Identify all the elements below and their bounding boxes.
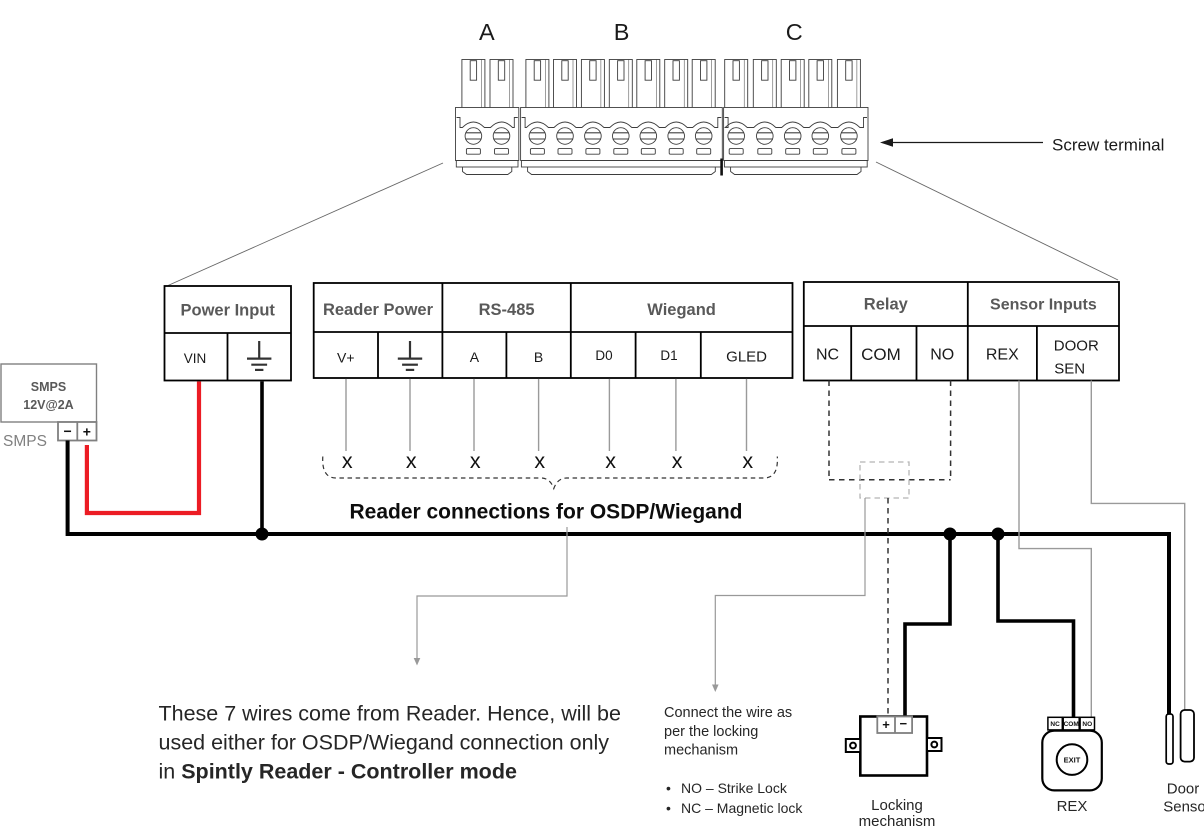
svg-text:NO – Strike Lock: NO – Strike Lock [681,780,788,796]
svg-text:•: • [666,800,671,816]
svg-text:x: x [342,449,353,473]
svg-text:Sensor Inputs: Sensor Inputs [990,297,1097,314]
svg-text:VIN: VIN [184,351,207,366]
svg-text:REX: REX [986,347,1019,364]
svg-text:NC: NC [816,347,839,364]
svg-text:Wiegand: Wiegand [647,301,716,319]
svg-text:mechanism: mechanism [664,743,738,759]
svg-text:Sensor: Sensor [1163,799,1204,816]
svg-text:REX: REX [1057,798,1088,815]
svg-text:SMPS: SMPS [31,380,66,394]
svg-text:Door: Door [1167,781,1200,798]
svg-text:in Spintly Reader - Controller: in Spintly Reader - Controller mode [159,760,517,784]
svg-text:mechanism: mechanism [859,813,936,827]
svg-text:−: − [900,716,908,731]
svg-text:B: B [534,349,543,365]
svg-text:DOOR: DOOR [1054,338,1099,355]
svg-text:NC: NC [1050,721,1060,728]
svg-text:SMPS: SMPS [3,433,47,450]
svg-text:B: B [614,19,630,45]
svg-text:RS-485: RS-485 [479,301,535,319]
svg-text:GLED: GLED [726,349,767,366]
svg-text:COM: COM [1064,721,1079,728]
svg-text:−: − [64,423,72,439]
svg-text:NO: NO [1082,721,1092,728]
svg-text:V+: V+ [337,350,355,366]
svg-text:NC – Magnetic lock: NC – Magnetic lock [681,800,803,816]
svg-text:SEN: SEN [1054,361,1085,378]
svg-text:x: x [406,449,417,473]
svg-text:Connect the wire as: Connect the wire as [664,705,792,721]
svg-text:x: x [534,449,545,473]
svg-text:NO: NO [930,347,954,364]
svg-text:Locking: Locking [871,797,923,814]
svg-text:Screw terminal: Screw terminal [1052,136,1164,155]
svg-text:COM: COM [861,345,901,364]
svg-text:12V@2A: 12V@2A [23,398,73,412]
svg-text:Relay: Relay [864,296,909,314]
svg-text:A: A [470,349,480,365]
svg-text:x: x [605,449,616,473]
svg-text:•: • [666,780,671,796]
svg-text:These 7 wires come from Reader: These 7 wires come from Reader. Hence, w… [159,702,621,726]
svg-text:Power Input: Power Input [180,302,275,320]
svg-text:Reader Power: Reader Power [323,301,434,319]
svg-text:EXIT: EXIT [1064,756,1081,765]
svg-text:+: + [83,424,91,440]
svg-text:+: + [882,717,890,732]
svg-text:x: x [672,449,683,473]
svg-text:used either for OSDP/Wiegand c: used either for OSDP/Wiegand connection … [159,731,610,755]
svg-text:C: C [786,19,803,45]
svg-text:x: x [742,449,753,473]
svg-text:D1: D1 [660,348,677,363]
svg-text:Reader connections for OSDP/Wi: Reader connections for OSDP/Wiegand [349,501,742,524]
svg-text:D0: D0 [595,348,612,363]
svg-text:per the locking: per the locking [664,724,758,740]
svg-text:x: x [470,449,481,473]
svg-text:A: A [479,19,495,45]
